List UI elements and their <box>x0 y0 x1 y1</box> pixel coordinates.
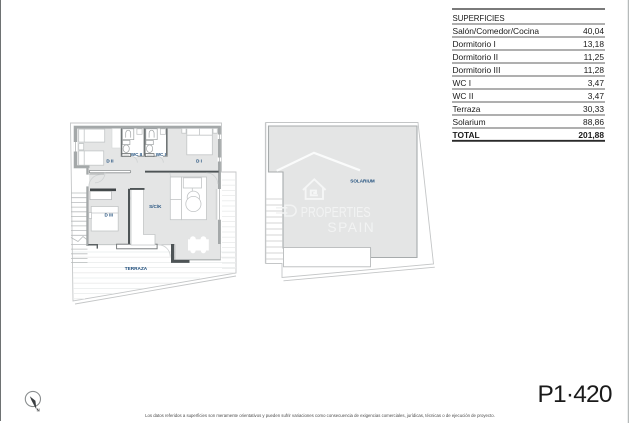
svg-text:3,47: 3,47 <box>588 91 605 101</box>
svg-text:11,25: 11,25 <box>584 52 605 62</box>
svg-text:WC I: WC I <box>156 152 166 157</box>
svg-text:PROPERTIES: PROPERTIES <box>301 203 371 220</box>
svg-text:Dormitorio I: Dormitorio I <box>453 39 496 49</box>
svg-text:D II: D II <box>106 158 113 163</box>
svg-text:Los datos referidos a superfic: Los datos referidos a superficies son me… <box>145 413 495 418</box>
svg-text:88,86: 88,86 <box>583 117 604 127</box>
svg-text:TERRAZA: TERRAZA <box>125 266 148 271</box>
svg-text:Dormitorio II: Dormitorio II <box>453 52 499 62</box>
svg-text:SPAIN: SPAIN <box>327 220 375 235</box>
svg-text:Dormitorio III: Dormitorio III <box>453 65 501 75</box>
svg-text:TOTAL: TOTAL <box>453 130 480 140</box>
svg-text:Terraza: Terraza <box>453 104 481 114</box>
svg-text:30,33: 30,33 <box>583 104 604 114</box>
svg-text:SUPERFICIES: SUPERFICIES <box>453 14 505 23</box>
svg-text:11,28: 11,28 <box>584 65 605 75</box>
svg-text:N: N <box>37 408 40 413</box>
svg-text:P1·420: P1·420 <box>538 381 612 408</box>
svg-text:Solarium: Solarium <box>453 117 486 127</box>
svg-text:SOLARIUM: SOLARIUM <box>350 178 375 183</box>
svg-text:13,18: 13,18 <box>583 39 604 49</box>
svg-text:3,47: 3,47 <box>588 78 605 88</box>
svg-text:40,04: 40,04 <box>583 26 604 36</box>
svg-text:WC II: WC II <box>131 152 142 157</box>
svg-text:WC II: WC II <box>453 91 474 101</box>
svg-text:D III: D III <box>104 212 112 217</box>
svg-text:Salón/Comedor/Cocina: Salón/Comedor/Cocina <box>453 26 540 36</box>
svg-text:S/C/K: S/C/K <box>149 204 162 209</box>
svg-text:D I: D I <box>196 158 202 163</box>
svg-text:201,88: 201,88 <box>578 130 604 140</box>
svg-text:WC I: WC I <box>453 78 472 88</box>
